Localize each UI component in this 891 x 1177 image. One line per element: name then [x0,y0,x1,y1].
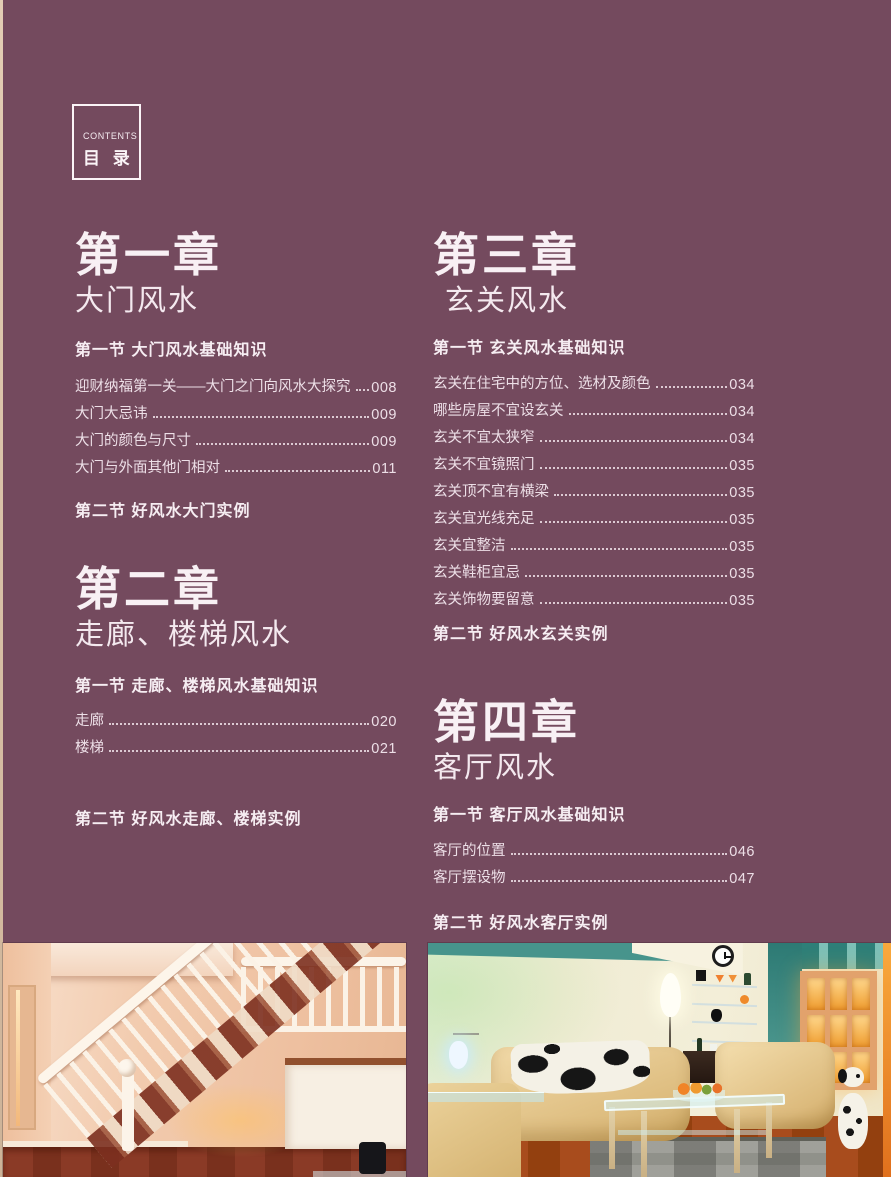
coffee-table-leg [609,1107,615,1169]
photo-right-edge-glow [883,943,891,1177]
toc-leader-dots [569,413,728,415]
toc-leader-dots [540,440,728,442]
toc-column-right: 第三章 玄关风水 第一节 玄关风水基础知识 玄关在住宅中的方位、选材及颜色 03… [433,232,755,933]
toc-leader-dots [153,416,370,418]
book-toc-page: CONTENTS 目 录 第一章 大门风水 第一节 大门风水基础知识 迎财纳福第… [0,0,891,1177]
toc-leader-dots [225,470,370,472]
cabinet-niche [830,1015,847,1047]
livingroom-ceiling-slats [791,943,884,969]
chapter-1-section-1-list: 迎财纳福第一关——大门之门向风水大探究 008 大门大忌讳 009 大门的颜色与… [75,371,397,479]
toc-item-page: 047 [729,871,755,889]
toc-leader-dots [540,521,728,523]
staircase-door [8,985,36,1130]
toc-item: 玄关宜整洁 035 [433,530,755,557]
chapter-2-title: 走廊、楼梯风水 [75,620,397,652]
chapter-3-section-1-list: 玄关在住宅中的方位、选材及颜色 034 哪些房屋不宜设玄关 034 玄关不宜太狭… [433,368,755,611]
toc-item: 玄关顶不宜有横梁 035 [433,476,755,503]
toc-item-label: 玄关不宜镜照门 [433,453,535,476]
chapter-2-number: 第二章 [75,566,397,614]
toc-leader-dots [511,880,728,882]
toc-leader-dots [540,602,728,604]
toc-item-label: 玄关宜光线充足 [433,507,535,530]
dalmatian-statue [834,1067,874,1149]
sideboard-bottle [697,1038,702,1051]
toc-leader-dots [540,467,728,469]
chapter-1-title: 大门风水 [75,286,397,318]
table-lamp-arm [453,1033,479,1035]
toc-item-page: 034 [729,377,755,395]
toc-item: 客厅摆设物 047 [433,862,755,889]
toc-item: 玄关鞋柜宜忌 035 [433,557,755,584]
toc-item-label: 大门大忌讳 [75,402,148,425]
toc-item: 玄关在住宅中的方位、选材及颜色 034 [433,368,755,395]
contents-box: CONTENTS 目 录 [72,104,141,180]
toc-leader-dots [356,389,370,391]
shelf-orange-ornament [740,995,749,1004]
toc-item-label: 客厅摆设物 [433,866,506,889]
staircase-photo [3,943,406,1177]
toc-item-label: 哪些房屋不宜设玄关 [433,399,564,422]
chapter-3-title: 玄关风水 [445,286,755,318]
toc-item: 迎财纳福第一关——大门之门向风水大探究 008 [75,371,397,398]
chapter-1-number: 第一章 [75,232,397,280]
dalmatian-body [838,1093,868,1149]
toc-item: 玄关不宜镜照门 035 [433,449,755,476]
toc-item: 大门与外面其他门相对 011 [75,452,397,479]
chapter-1-section-2-heading: 第二节 好风水大门实例 [75,503,397,521]
toc-item-label: 玄关不宜太狭窄 [433,426,535,449]
toc-item: 楼梯 021 [75,732,397,759]
toc-item-label: 玄关在住宅中的方位、选材及颜色 [433,372,651,395]
staircase-speaker [359,1142,386,1174]
chapter-3-section-2-heading: 第二节 好风水玄关实例 [433,626,755,644]
contents-label-zh: 目 录 [83,144,139,169]
coffee-table-leg [734,1109,740,1173]
toc-leader-dots [109,723,369,725]
toc-item-label: 客厅的位置 [433,839,506,862]
living-room-photo [428,943,891,1177]
shelf-green-bottle [744,973,751,985]
toc-item: 客厅的位置 046 [433,835,755,862]
floor-lamp-shade [660,973,681,1017]
glass-shelf [692,1021,757,1025]
coffee-table-leg [766,1102,772,1158]
toc-item-page: 034 [729,431,755,449]
gray-rug [590,1137,826,1177]
toc-item-label: 玄关宜整洁 [433,534,506,557]
toc-item-label: 玄关鞋柜宜忌 [433,561,520,584]
corner-glass-shelves [692,969,757,1042]
coffee-table-shelf [618,1130,766,1135]
toc-item-label: 迎财纳福第一关——大门之门向风水大探究 [75,375,351,398]
chapter-3-section-1-heading: 第一节 玄关风水基础知识 [433,340,755,358]
staircase-door-light [16,990,20,1126]
toc-item: 走廊 020 [75,705,397,732]
cabinet-niche [807,978,824,1010]
coffee-table-leg [641,1111,647,1177]
chapter-4-title: 客厅风水 [433,753,755,785]
toc-item-label: 玄关饰物要留意 [433,588,535,611]
toc-item: 大门大忌讳 009 [75,398,397,425]
toc-item-page: 035 [729,458,755,476]
toc-item-page: 035 [729,566,755,584]
wall-clock [712,945,734,967]
toc-item-page: 046 [729,844,755,862]
toc-leader-dots [554,494,727,496]
toc-item: 玄关不宜太狭窄 034 [433,422,755,449]
toc-item-page: 021 [371,741,397,759]
toc-leader-dots [525,575,727,577]
chapter-2-section-2-heading: 第二节 好风水走廊、楼梯实例 [75,811,397,829]
toc-item-label: 玄关顶不宜有横梁 [433,480,549,503]
toc-item: 玄关宜光线充足 035 [433,503,755,530]
chapter-3-number: 第三章 [433,232,755,280]
toc-item-page: 035 [729,593,755,611]
shelf-martini-glass [728,975,737,983]
toc-item: 玄关饰物要留意 035 [433,584,755,611]
toc-item-page: 009 [371,434,397,452]
cabinet-niche [830,978,847,1010]
stair-newel-post [122,1073,134,1151]
staircase-half-wall [285,1058,406,1149]
toc-leader-dots [656,386,728,388]
toc-item-page: 009 [371,407,397,425]
chapter-2-section-1-list: 走廊 020 楼梯 021 [75,705,397,759]
chapter-4-number: 第四章 [433,699,755,747]
clock-minute-hand [724,956,731,958]
toc-item: 哪些房屋不宜设玄关 034 [433,395,755,422]
cabinet-niche [852,978,869,1010]
toc-leader-dots [109,750,369,752]
toc-item-page: 008 [371,380,397,398]
chapter-4-section-2-heading: 第二节 好风水客厅实例 [433,915,755,933]
toc-item-page: 011 [372,461,397,479]
toc-item-page: 034 [729,404,755,422]
table-lamp-shade [449,1041,468,1069]
glass-side-table [428,1092,544,1102]
chapter-1-section-1-heading: 第一节 大门风水基础知识 [75,342,397,360]
shelf-black-vase [711,1009,722,1022]
toc-leader-dots [511,853,728,855]
shelf-black-box [696,970,706,981]
toc-item-page: 035 [729,512,755,530]
contents-label-en: CONTENTS [83,131,139,141]
fruit [676,1083,724,1095]
toc-item-page: 035 [729,539,755,557]
toc-leader-dots [511,548,728,550]
toc-column-left: 第一章 大门风水 第一节 大门风水基础知识 迎财纳福第一关——大门之门向风水大探… [75,232,397,829]
shelf-martini-glass [715,975,724,983]
toc-item-page: 035 [729,485,755,503]
chapter-2-section-1-heading: 第一节 走廊、楼梯风水基础知识 [75,678,397,696]
chapter-4-section-1-heading: 第一节 客厅风水基础知识 [433,807,755,825]
toc-item: 大门的颜色与尺寸 009 [75,425,397,452]
dalmatian-ear [838,1069,847,1083]
chapter-4-section-1-list: 客厅的位置 046 客厅摆设物 047 [433,835,755,889]
toc-item-label: 大门与外面其他门相对 [75,456,220,479]
toc-item-label: 走廊 [75,709,104,732]
toc-item-label: 大门的颜色与尺寸 [75,429,191,452]
toc-item-label: 楼梯 [75,736,104,759]
toc-leader-dots [196,443,369,445]
livingroom-teal-column [768,943,801,1053]
cabinet-niche [852,1015,869,1047]
toc-item-page: 020 [371,714,397,732]
